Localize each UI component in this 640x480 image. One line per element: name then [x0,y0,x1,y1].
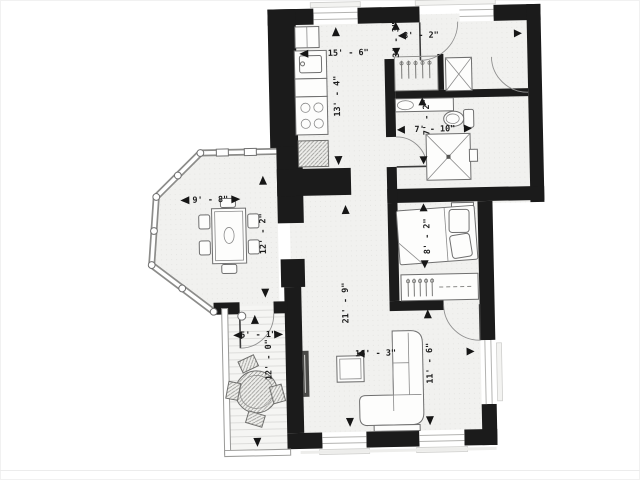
wardrobe [401,273,479,301]
floorplan-viewer: 8' - 2" 3' - 3" 15' - 6" 13' - 4" 7' - 2… [0,0,640,480]
dim-bath-width: 7' - 10" [414,124,455,135]
tv [303,351,310,397]
patio-chair [226,381,241,400]
shower-valve [469,149,477,161]
window-right [480,340,496,404]
entry-stoop [415,0,495,5]
dim-living-length: 11' - 6" [425,343,436,384]
bay-post [174,172,181,179]
dim-hall-length: 21' - 9" [341,282,352,323]
bed [396,205,478,265]
wall-dining-south-2 [273,301,287,313]
bay-post [197,150,204,157]
balcony-railing-bottom [225,449,291,456]
wall-bath-left-lower [387,167,398,203]
stove [295,96,328,135]
wall-bottom-3 [464,429,497,446]
window-sill-right [496,343,502,401]
dim-bedroom-width: 8' - 2" [422,218,433,254]
bedroom [396,202,479,301]
bay-post [153,193,160,200]
dining-chair [222,264,237,273]
bay-post [179,285,186,292]
bay-post [151,228,158,235]
dim-dining-width: 9' - 8" [192,195,228,206]
dining-chair [199,241,210,255]
bay-post [148,262,155,269]
window-bottom-left [322,432,366,449]
dim-entry-width: 8' - 2" [403,30,439,41]
pillow [449,233,472,259]
shower-drain [446,155,450,159]
wall-kitchen-south [277,168,352,197]
kitchen-sink [299,55,321,72]
window-sill-top [310,2,360,8]
dim-living-width: 16' - 3" [355,348,396,359]
wall-bedroom-south [389,300,443,311]
bay-post [210,308,217,315]
dim-kitchen-width: 15' - 6" [328,48,369,59]
pillow [449,209,469,232]
door-hinge-post [238,312,246,320]
dim-dining-length: 12' - 2" [258,213,269,254]
floorplan-drawing: 8' - 2" 3' - 3" 15' - 6" 13' - 4" 7' - 2… [0,0,640,480]
wall-bottom-1 [287,433,322,450]
kitchen-counter [295,78,327,97]
dining-table [212,208,247,264]
sofa-throw [374,424,420,431]
window-bottom-right [419,430,464,447]
window-entry-sidelight [459,5,493,22]
wall-kitchen-left [267,9,298,154]
ottoman [337,356,365,383]
window-top [313,8,357,25]
wall-bottom-2 [366,430,419,447]
dim-balcony-length: 12' - 0" [264,339,275,380]
shower-stall-entry [445,57,472,91]
wall-dining-se-corner [281,259,306,287]
bay-mullion [244,148,256,155]
dim-entry-depth: 3' - 3" [391,22,402,58]
dim-kitchen-length: 13' - 4" [332,76,343,117]
wall-top-2 [357,6,419,23]
dishwasher [298,140,329,167]
bay-mullion [216,149,228,156]
shower [426,133,478,180]
dining-chair [199,215,210,229]
